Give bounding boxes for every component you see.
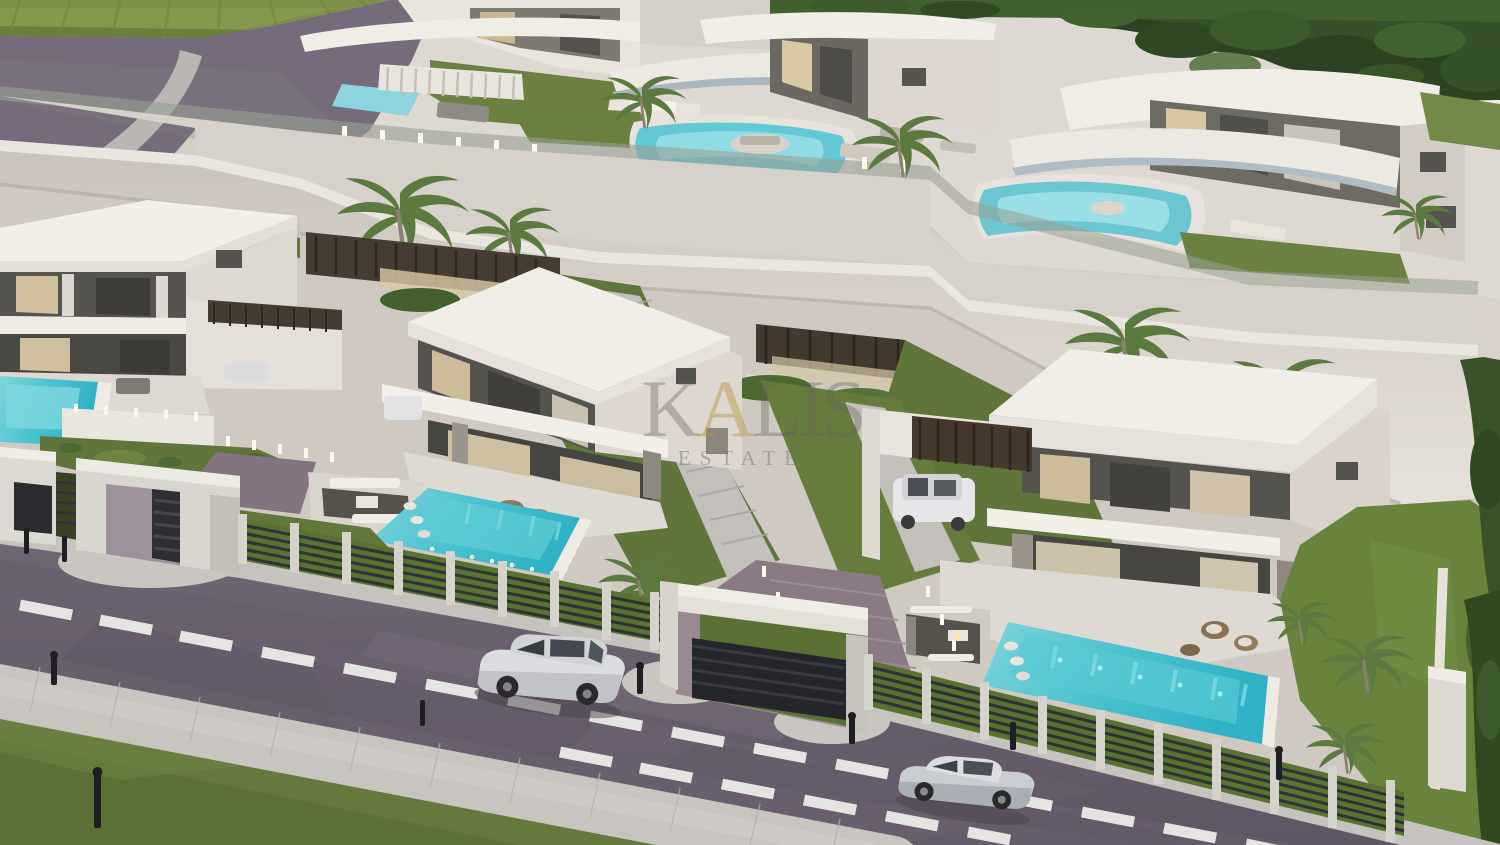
svg-text:ESTATE: ESTATE (678, 446, 806, 470)
svg-text:KALIS: KALIS (641, 363, 862, 454)
